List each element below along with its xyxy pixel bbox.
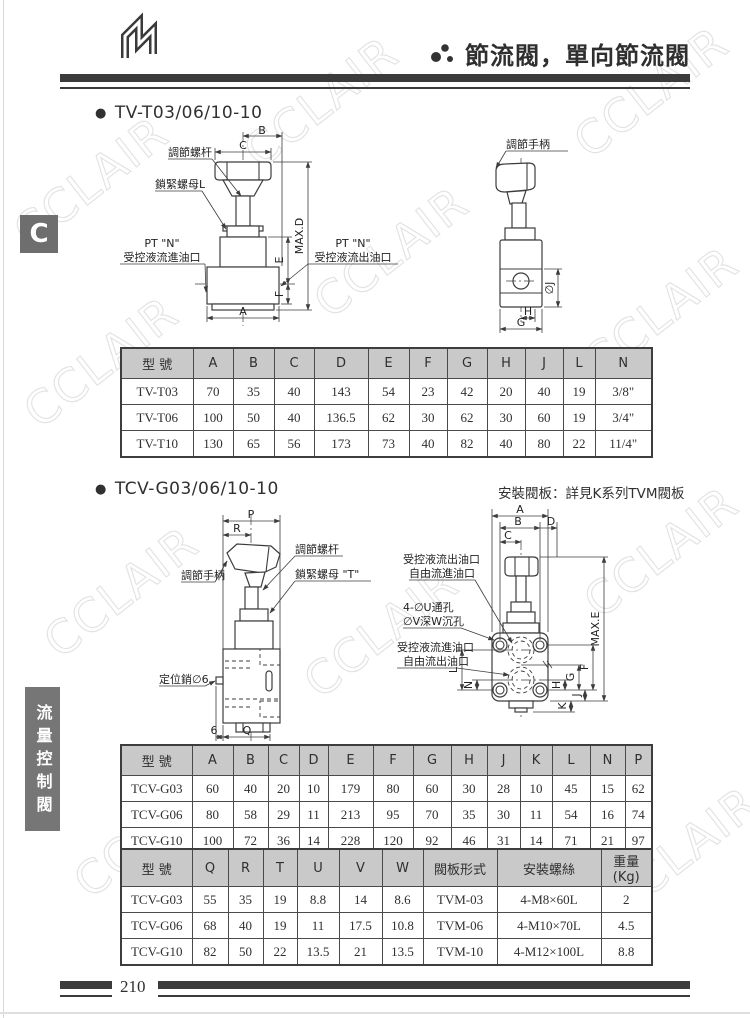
header-rule-thin	[60, 87, 690, 89]
callout-port-left-1: PT "N"	[144, 237, 179, 250]
tv-side-drawing: ∅J H G 調節手柄	[440, 126, 650, 341]
callout-pin: 定位銷∅6	[159, 672, 209, 686]
table-header-cell: 閥板形式	[423, 849, 497, 887]
table-header-cell: 重量 (Kg)	[601, 849, 652, 887]
value-cell: 11/4"	[595, 431, 652, 458]
value-cell: 35	[228, 887, 263, 913]
value-cell: 20	[268, 776, 299, 802]
value-cell: 213	[328, 802, 373, 828]
value-cell: 2	[601, 887, 652, 913]
value-cell: 4-M8×60L	[497, 887, 601, 913]
table-header-cell: F	[409, 348, 447, 379]
dim-label: E	[273, 256, 286, 263]
callout-in-port-1: 受控液流進油口	[397, 640, 474, 654]
dim-label: N	[462, 681, 475, 689]
value-cell: TVM-03	[423, 887, 497, 913]
value-cell: 13.5	[297, 939, 339, 966]
table-header-cell: H	[487, 348, 525, 379]
model-cell: TCV-G10	[121, 939, 192, 966]
table-header-cell: E	[368, 348, 409, 379]
table-row: TCV-G03604020101798060302810451562	[121, 776, 652, 802]
callout-in-port-2: 自由流出油口	[403, 654, 469, 668]
page-number: 210	[120, 977, 146, 997]
valve-body	[496, 163, 542, 307]
table-header-cell: C	[268, 745, 299, 776]
value-cell: 10	[520, 776, 552, 802]
value-cell: TVM-06	[423, 913, 497, 939]
value-cell: 173	[314, 431, 368, 458]
table-header-cell: P	[625, 745, 652, 776]
value-cell: 62	[368, 405, 409, 431]
value-cell: 16	[590, 802, 625, 828]
callout-handle: 調節手柄	[181, 568, 225, 582]
value-cell: 40	[274, 405, 314, 431]
value-cell: 55	[192, 887, 228, 913]
dim-label: H	[550, 681, 563, 689]
table-header-cell: G	[447, 348, 487, 379]
value-cell: 4-M10×70L	[497, 913, 601, 939]
table-header-cell: T	[263, 849, 297, 887]
value-cell: 40	[487, 431, 525, 458]
value-cell: 80	[373, 776, 413, 802]
table-row: TV-T10130655617373408240802211/4"	[121, 431, 652, 458]
dim-label: K	[556, 702, 569, 710]
chapter-tab: C	[20, 215, 58, 253]
dim-label: C	[239, 139, 247, 152]
table-row: TCV-G035535198.8148.6TVM-034-M8×60L2	[121, 887, 652, 913]
value-cell: 19	[563, 379, 595, 405]
value-cell: 60	[192, 776, 233, 802]
chapter-tab-label: C	[29, 219, 48, 249]
value-cell: 82	[192, 939, 228, 966]
brand-logo	[112, 8, 166, 70]
footer-thin-right	[158, 995, 690, 997]
table-header-cell: L	[552, 745, 590, 776]
dim-label: B	[258, 126, 266, 137]
model-cell: TV-T10	[121, 431, 193, 458]
value-cell: 14	[339, 887, 382, 913]
dim-label: A	[239, 305, 247, 318]
table-header-cell: B	[233, 745, 268, 776]
value-cell: 50	[233, 405, 274, 431]
value-cell: 11	[297, 913, 339, 939]
table-header-cell: A	[192, 745, 233, 776]
table-row: TV-T037035401435423422040193/8"	[121, 379, 652, 405]
model-cell: TCV-G03	[121, 776, 192, 802]
value-cell: 40	[409, 431, 447, 458]
model-cell: TV-T06	[121, 405, 193, 431]
dim-label: Q	[243, 724, 252, 737]
dim-label: G	[517, 316, 526, 329]
table-header-cell: 型 號	[121, 348, 193, 379]
value-cell: 54	[368, 379, 409, 405]
dim-label: B	[514, 515, 522, 528]
value-cell: 50	[228, 939, 263, 966]
section-title: TV-T03/06/10-10	[115, 103, 263, 123]
value-cell: 95	[373, 802, 413, 828]
value-cell: 62	[625, 776, 652, 802]
value-cell: 10	[299, 776, 328, 802]
dim-label: R	[233, 522, 241, 535]
value-cell: 28	[487, 776, 520, 802]
tv-spec-table-wrap: 型 號ABCDEFGHJLNTV-T0370354014354234220401…	[120, 347, 653, 458]
footer-rule-left	[60, 981, 112, 989]
callout-thru-hole-1: 4-∅U通孔	[403, 601, 454, 614]
footer-thin-left	[60, 995, 112, 997]
callout-port-left-2: 受控液流進油口	[124, 250, 201, 264]
value-cell: 10.8	[382, 913, 423, 939]
value-cell: 40	[233, 776, 268, 802]
value-cell: 35	[233, 379, 274, 405]
dim-label: D	[547, 515, 555, 528]
value-cell: 3/8"	[595, 379, 652, 405]
value-cell: 4-M12×100L	[497, 939, 601, 966]
value-cell: 40	[525, 379, 563, 405]
callout-adjust-screw: 調節螺杆	[295, 542, 339, 556]
value-cell: 22	[263, 939, 297, 966]
value-cell: 17.5	[339, 913, 382, 939]
dots-icon	[429, 42, 455, 66]
dim-label: 6	[211, 724, 218, 737]
table-header-cell: G	[413, 745, 451, 776]
valve-body	[216, 544, 280, 732]
callout-out-port-2: 自由流進油口	[409, 566, 475, 580]
table-header-cell: C	[274, 348, 314, 379]
value-cell: 45	[552, 776, 590, 802]
table-header-cell: E	[328, 745, 373, 776]
value-cell: 179	[328, 776, 373, 802]
callout-handle: 調節手柄	[506, 137, 550, 151]
value-cell: 74	[625, 802, 652, 828]
dim-label: C	[504, 529, 512, 542]
footer-rule-right	[158, 981, 690, 989]
page-title: 節流閥，單向節流閥	[465, 36, 690, 71]
page-title-block: 節流閥，單向節流閥	[429, 36, 690, 71]
page-bottom-edge	[0, 1012, 750, 1014]
table-header-cell: N	[595, 348, 652, 379]
value-cell: 4.5	[601, 913, 652, 939]
callout-port-right-1: PT "N"	[335, 237, 370, 250]
catalog-page: CCLAIR CCLAIR CCLAIR CCLAIR CCLAIR CCLAI…	[0, 0, 750, 1018]
value-cell: 65	[233, 431, 274, 458]
table-row: TV-T061005040136.56230623060193/4"	[121, 405, 652, 431]
callout-port-right-2: 受控液流出油口	[315, 250, 392, 264]
value-cell: 56	[274, 431, 314, 458]
value-cell: 35	[451, 802, 487, 828]
value-cell: 100	[193, 405, 233, 431]
table-row: TCV-G1082502213.52113.5TVM-104-M12×100L8…	[121, 939, 652, 966]
table-row: TCV-G066840191117.510.8TVM-064-M10×70L4.…	[121, 913, 652, 939]
value-cell: 23	[409, 379, 447, 405]
value-cell: 30	[487, 802, 520, 828]
table-header-cell: L	[563, 348, 595, 379]
table-header-cell: Q	[192, 849, 228, 887]
value-cell: 20	[487, 379, 525, 405]
dim-label: F	[273, 291, 286, 297]
table-header-cell: J	[487, 745, 520, 776]
table-header-cell: W	[382, 849, 423, 887]
table-header-cell: F	[373, 745, 413, 776]
section-title: TCV-G03/06/10-10	[115, 479, 279, 499]
value-cell: 29	[268, 802, 299, 828]
value-cell: 30	[409, 405, 447, 431]
value-cell: 70	[193, 379, 233, 405]
callout-lock-nut: 鎖緊螺母 "T"	[295, 567, 359, 581]
value-cell: 8.8	[601, 939, 652, 966]
value-cell: 58	[233, 802, 268, 828]
tcv-dims-table-wrap: 型 號ABCDEFGHJKLNPTCV-G0360402010179806030…	[120, 744, 653, 855]
value-cell: 21	[339, 939, 382, 966]
tcv-plate-drawing: A B D C MAX.E F G H	[395, 494, 740, 746]
valve-body	[207, 162, 279, 310]
value-cell: 82	[447, 431, 487, 458]
value-cell: 30	[451, 776, 487, 802]
table-header-cell: H	[451, 745, 487, 776]
table-header-cell: V	[339, 849, 382, 887]
tcv-mount-table-wrap: 型 號QRTUVW閥板形式安裝螺絲重量 (Kg)TCV-G035535198.8…	[120, 848, 653, 966]
dim-label: P	[248, 508, 255, 521]
tcv-mount-table: 型 號QRTUVW閥板形式安裝螺絲重量 (Kg)TCV-G035535198.8…	[120, 848, 653, 966]
tv-spec-table: 型 號ABCDEFGHJLNTV-T0370354014354234220401…	[120, 347, 653, 458]
value-cell: 70	[413, 802, 451, 828]
value-cell: 19	[263, 913, 297, 939]
header-rule-thick	[60, 74, 690, 82]
value-cell: 13.5	[382, 939, 423, 966]
dim-label: J	[570, 693, 583, 697]
table-header-cell: 安裝螺絲	[497, 849, 601, 887]
table-header-cell: J	[525, 348, 563, 379]
value-cell: TVM-10	[423, 939, 497, 966]
value-cell: 68	[192, 913, 228, 939]
table-header-row: 型 號QRTUVW閥板形式安裝螺絲重量 (Kg)	[121, 849, 652, 887]
table-header-cell: D	[299, 745, 328, 776]
value-cell: 11	[299, 802, 328, 828]
value-cell: 19	[563, 405, 595, 431]
callout-out-port-1: 受控液流出油口	[403, 552, 480, 566]
section-heading-tv: ●TV-T03/06/10-10	[95, 103, 262, 123]
value-cell: 3/4"	[595, 405, 652, 431]
value-cell: 40	[274, 379, 314, 405]
dim-label: ∅J	[543, 282, 556, 295]
table-header-cell: R	[228, 849, 263, 887]
value-cell: 62	[447, 405, 487, 431]
value-cell: 60	[413, 776, 451, 802]
value-cell: 73	[368, 431, 409, 458]
page-edge-line	[3, 0, 4, 1018]
model-cell: TCV-G06	[121, 802, 192, 828]
table-header-row: 型 號ABCDEFGHJLN	[121, 348, 652, 379]
bullet-icon: ●	[95, 482, 107, 497]
bullet-icon: ●	[95, 106, 107, 121]
value-cell: 60	[525, 405, 563, 431]
tcv-dims-table: 型 號ABCDEFGHJKLNPTCV-G0360402010179806030…	[120, 744, 653, 855]
callout-adjust-screw: 調節螺杆	[168, 145, 212, 159]
category-label: 流量控制閥	[25, 687, 60, 831]
model-cell: TCV-G06	[121, 913, 192, 939]
model-cell: TV-T03	[121, 379, 193, 405]
value-cell: 19	[263, 887, 297, 913]
callout-lock-nut: 鎖緊螺母L	[155, 177, 206, 191]
table-header-cell: 型 號	[121, 849, 192, 887]
dim-label: MAX.D	[293, 218, 306, 255]
model-cell: TCV-G03	[121, 887, 192, 913]
table-header-row: 型 號ABCDEFGHJKLNP	[121, 745, 652, 776]
dim-label: MAX.E	[589, 611, 602, 646]
value-cell: 40	[228, 913, 263, 939]
callout-thru-hole-2: ∅V深W沉孔	[403, 615, 464, 628]
table-header-cell: K	[520, 745, 552, 776]
value-cell: 80	[525, 431, 563, 458]
table-row: TCV-G06805829112139570353011541674	[121, 802, 652, 828]
value-cell: 8.6	[382, 887, 423, 913]
value-cell: 22	[563, 431, 595, 458]
tcv-side-drawing: P R 6	[123, 503, 413, 745]
value-cell: 30	[487, 405, 525, 431]
table-header-cell: B	[233, 348, 274, 379]
table-header-cell: U	[297, 849, 339, 887]
value-cell: 80	[192, 802, 233, 828]
table-header-cell: A	[193, 348, 233, 379]
section-heading-tcv: ●TCV-G03/06/10-10	[95, 479, 279, 499]
table-header-cell: N	[590, 745, 625, 776]
value-cell: 8.8	[297, 887, 339, 913]
value-cell: 54	[552, 802, 590, 828]
value-cell: 11	[520, 802, 552, 828]
value-cell: 130	[193, 431, 233, 458]
value-cell: 42	[447, 379, 487, 405]
value-cell: 136.5	[314, 405, 368, 431]
table-header-cell: D	[314, 348, 368, 379]
table-header-cell: 型 號	[121, 745, 192, 776]
value-cell: 143	[314, 379, 368, 405]
value-cell: 15	[590, 776, 625, 802]
tv-front-drawing: B C MAX.D E F A 調節螺杆 鎖緊螺母L	[110, 126, 420, 341]
